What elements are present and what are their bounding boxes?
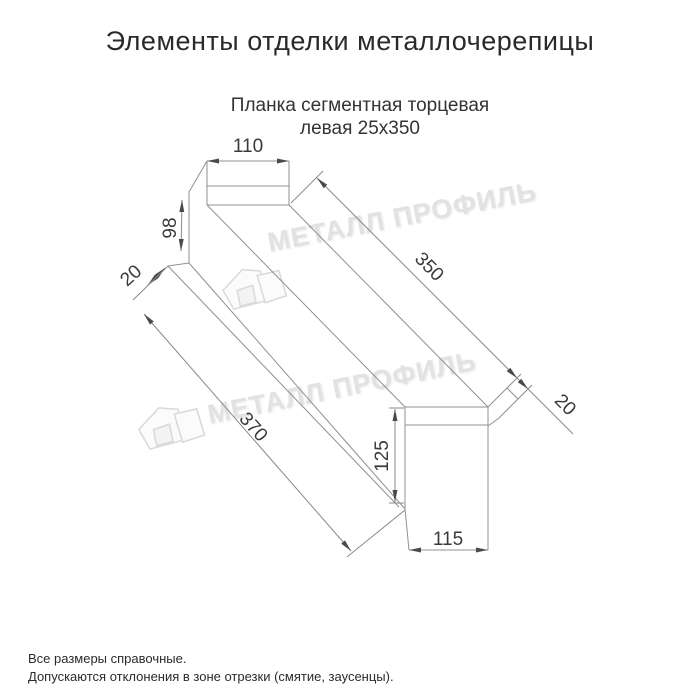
dim-label-110: 110 bbox=[233, 136, 263, 157]
footnote-line2: Допускаются отклонения в зоне отрезки (с… bbox=[28, 668, 394, 686]
dim-label-115: 115 bbox=[433, 529, 463, 550]
near-top-fold bbox=[488, 388, 518, 426]
axonometric-drawing: 110 98 20 350 370 20 125 115 bbox=[0, 0, 700, 700]
far-end-profile bbox=[168, 161, 289, 266]
strip-long-edges bbox=[168, 205, 488, 509]
dimension-labels: 110 98 20 350 370 20 125 115 bbox=[116, 136, 579, 550]
dim20-near-line bbox=[517, 378, 528, 389]
far-end-fold-edge bbox=[168, 263, 189, 266]
dim-label-125: 125 bbox=[372, 440, 393, 472]
dim-label-350: 350 bbox=[410, 248, 447, 285]
dim98-line bbox=[181, 200, 182, 251]
footnotes: Все размеры справочные. Допускаются откл… bbox=[28, 650, 394, 686]
footnote-line1: Все размеры справочные. bbox=[28, 650, 394, 668]
dim-label-370: 370 bbox=[235, 409, 272, 447]
near-end-face bbox=[405, 388, 518, 550]
dim-label-98: 98 bbox=[160, 217, 181, 238]
dim-label-20-far: 20 bbox=[116, 261, 146, 291]
dimension-lines bbox=[133, 171, 573, 557]
technical-drawing-page: { "page": { "title": "Элементы отделки м… bbox=[0, 0, 700, 700]
